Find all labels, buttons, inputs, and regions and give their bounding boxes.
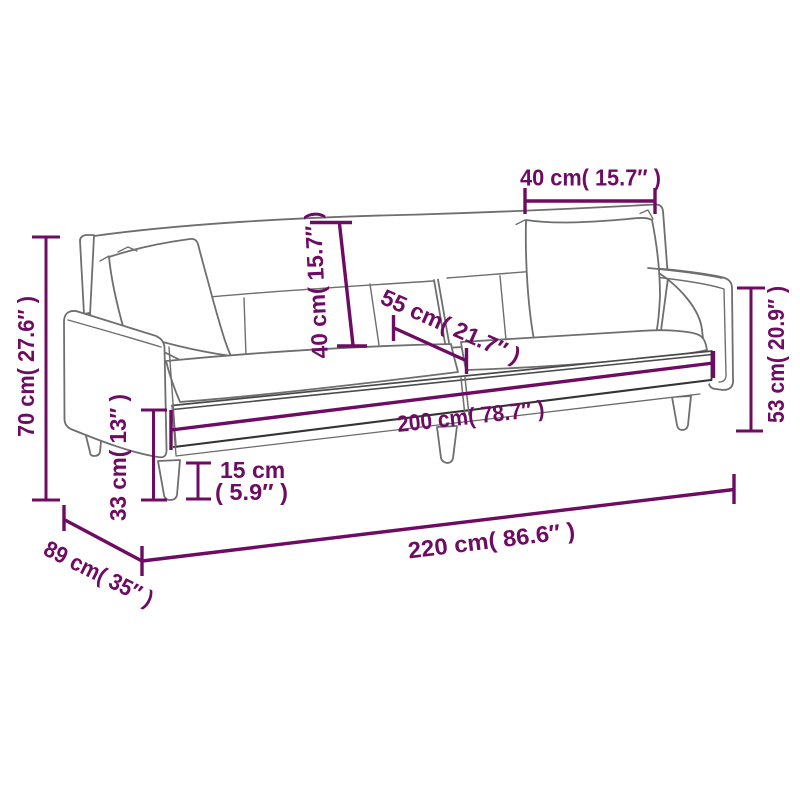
svg-text:70 cm( 27.6″ ): 70 cm( 27.6″ ) [13,296,39,437]
svg-text:53 cm( 20.9″ ): 53 cm( 20.9″ ) [763,286,789,423]
svg-text:( 5.9″ ): ( 5.9″ ) [215,479,288,505]
svg-text:33 cm( 13″ ): 33 cm( 13″ ) [105,394,131,521]
svg-text:40 cm( 15.7″ ): 40 cm( 15.7″ ) [520,165,661,191]
